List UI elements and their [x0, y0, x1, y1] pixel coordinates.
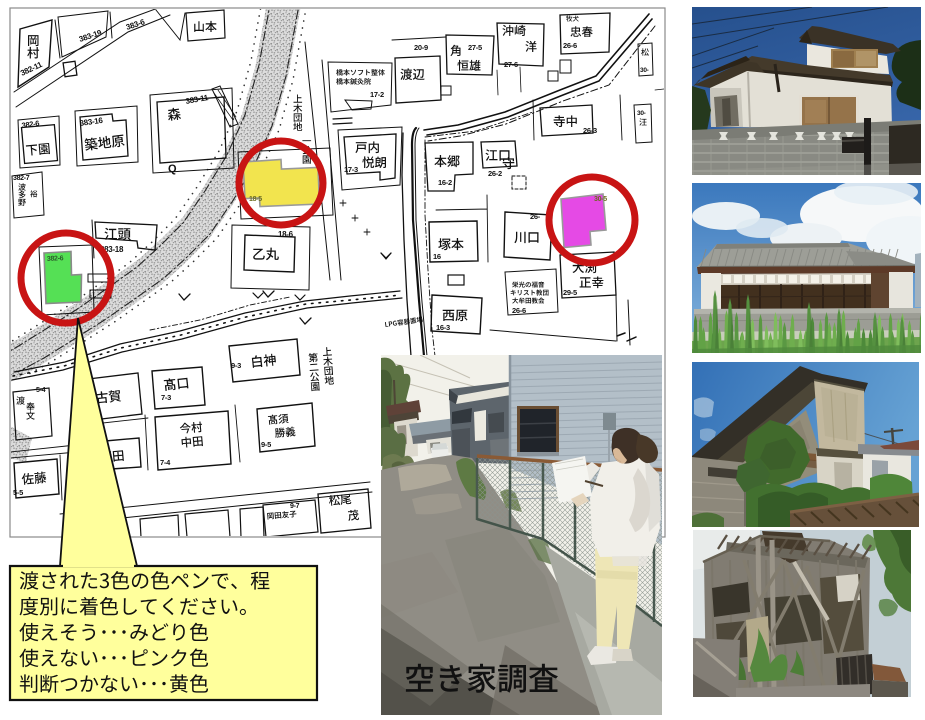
svg-text:29-5: 29-5 [563, 288, 577, 297]
svg-text:26-: 26- [530, 212, 541, 221]
svg-text:26-2: 26-2 [488, 169, 502, 178]
svg-text:5-5: 5-5 [13, 488, 23, 497]
svg-text:5-4: 5-4 [36, 387, 46, 394]
svg-text:7-3: 7-3 [161, 393, 171, 402]
svg-text:382-7: 382-7 [13, 175, 30, 182]
svg-text:7-4: 7-4 [160, 458, 171, 467]
svg-text:30-5: 30-5 [594, 196, 607, 203]
svg-text:30-: 30- [640, 67, 649, 74]
svg-text:30-: 30- [637, 110, 646, 117]
svg-text:16-3: 16-3 [436, 323, 450, 332]
svg-text:18-6: 18-6 [278, 230, 294, 239]
svg-text:26-6: 26-6 [512, 306, 526, 315]
svg-text:16: 16 [433, 252, 441, 261]
svg-text:18-5: 18-5 [249, 196, 262, 203]
svg-text:17-2: 17-2 [370, 90, 384, 99]
svg-text:9-7: 9-7 [290, 503, 300, 510]
svg-text:20-9: 20-9 [414, 43, 428, 52]
svg-text:26-3: 26-3 [583, 126, 597, 135]
svg-text:9-5: 9-5 [261, 440, 271, 449]
svg-text:382-6: 382-6 [47, 255, 64, 263]
svg-text:26-6: 26-6 [563, 41, 577, 50]
svg-text:27-6: 27-6 [504, 60, 518, 69]
svg-text:27-5: 27-5 [468, 43, 482, 52]
svg-text:16-2: 16-2 [438, 178, 452, 187]
svg-text:17-3: 17-3 [344, 165, 358, 174]
svg-text:Q: Q [168, 163, 177, 175]
svg-text:9-3: 9-3 [231, 361, 241, 370]
